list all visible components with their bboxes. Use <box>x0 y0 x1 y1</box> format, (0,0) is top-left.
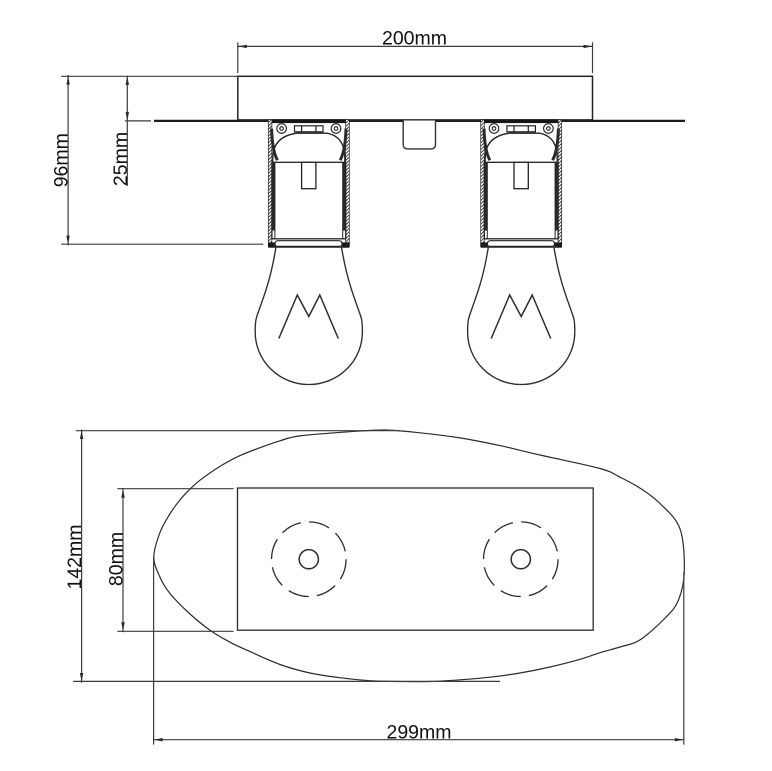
svg-text:25mm: 25mm <box>110 132 132 186</box>
svg-text:96mm: 96mm <box>51 133 73 187</box>
svg-text:80mm: 80mm <box>106 532 128 586</box>
svg-text:299mm: 299mm <box>386 721 451 743</box>
svg-text:142mm: 142mm <box>64 524 86 589</box>
svg-text:200mm: 200mm <box>382 28 447 50</box>
